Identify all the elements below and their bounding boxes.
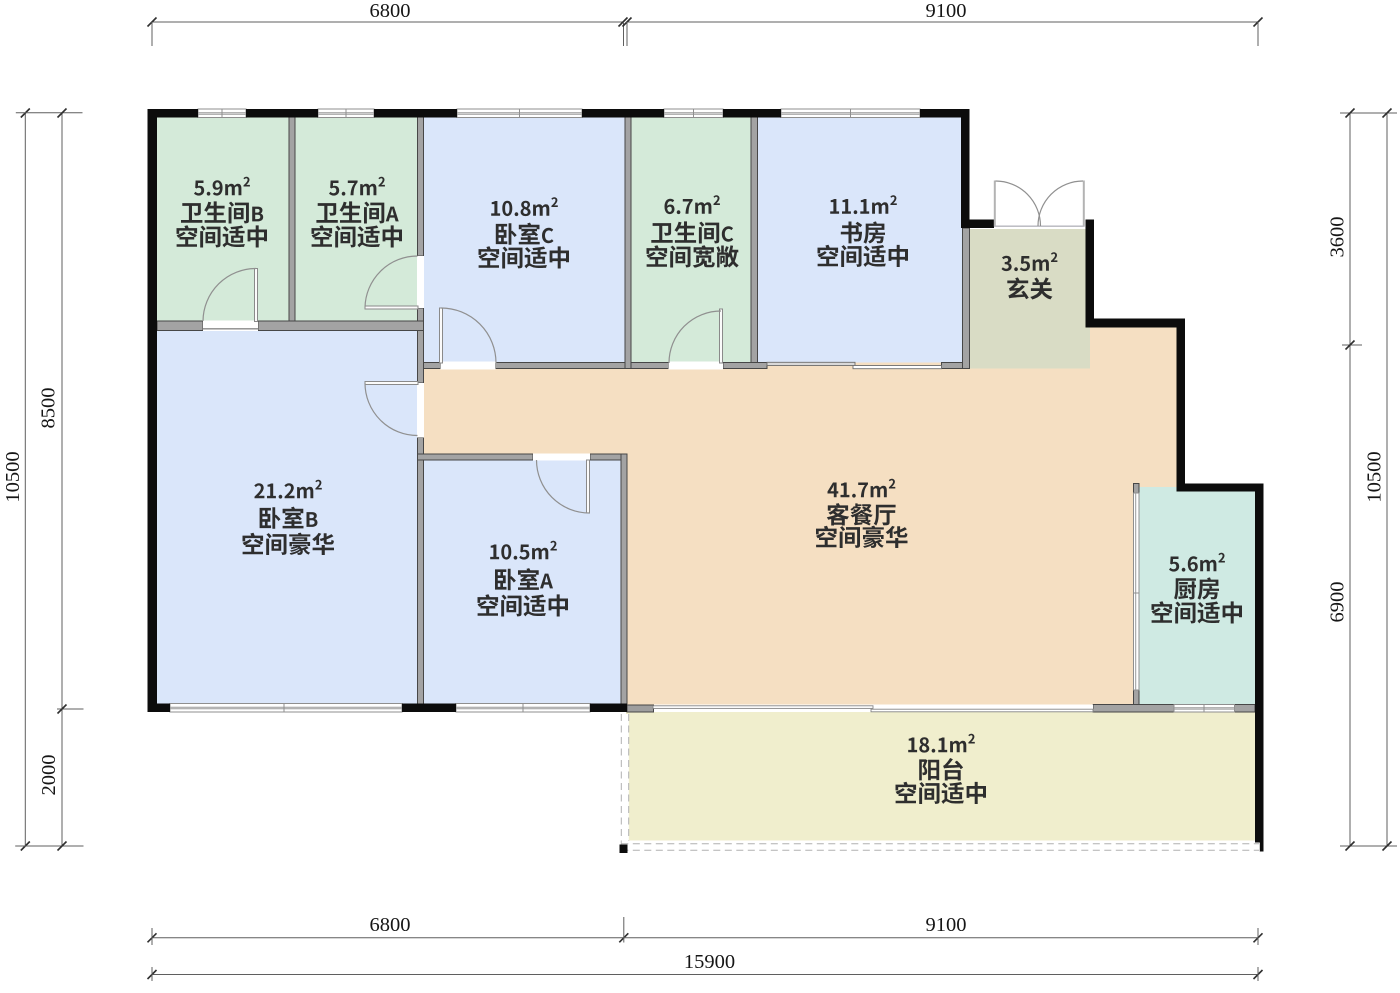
svg-text:6800: 6800 [370,914,411,936]
svg-text:2000: 2000 [38,755,60,796]
svg-text:8500: 8500 [38,388,60,429]
svg-text:6800: 6800 [370,0,411,22]
svg-text:10500: 10500 [1364,451,1386,502]
svg-text:9100: 9100 [926,0,967,22]
svg-text:3600: 3600 [1327,217,1349,258]
svg-text:9100: 9100 [926,914,967,936]
svg-text:6900: 6900 [1327,582,1349,623]
svg-text:15900: 15900 [684,951,735,973]
svg-text:10500: 10500 [2,451,24,502]
